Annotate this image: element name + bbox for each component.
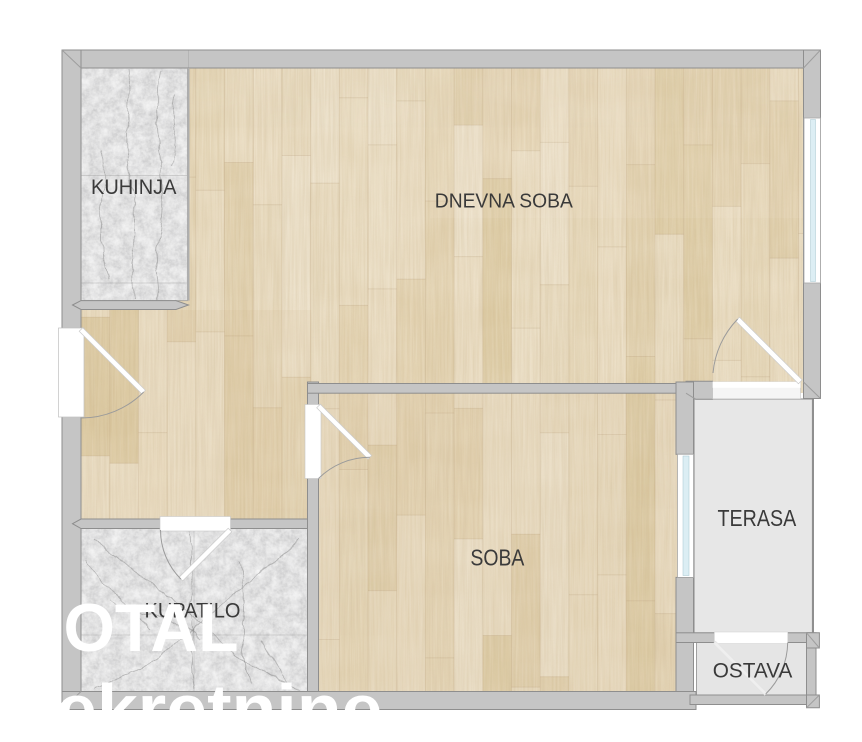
svg-text:OSTAVA: OSTAVA: [713, 658, 793, 682]
svg-text:TERASA: TERASA: [718, 505, 797, 531]
svg-text:OTAL: OTAL: [64, 590, 239, 666]
svg-text:KUHINJA: KUHINJA: [91, 175, 177, 199]
svg-text:SOBA: SOBA: [470, 544, 525, 570]
svg-text:ekretnine: ekretnine: [56, 670, 383, 742]
svg-text:DNEVNA SOBA: DNEVNA SOBA: [435, 191, 574, 213]
